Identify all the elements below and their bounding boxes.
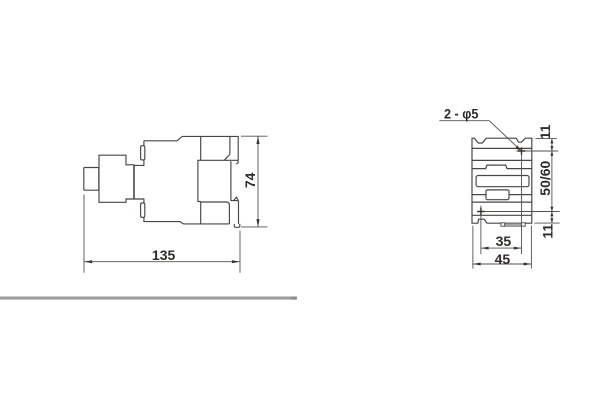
svg-text:45: 45: [495, 251, 511, 267]
svg-text:74: 74: [242, 172, 258, 188]
svg-text:2 - φ5: 2 - φ5: [444, 105, 479, 121]
svg-text:50/60: 50/60: [537, 160, 553, 195]
svg-text:11: 11: [537, 124, 553, 139]
svg-text:35: 35: [496, 233, 512, 249]
svg-text:135: 135: [152, 247, 176, 263]
svg-text:11: 11: [539, 224, 555, 239]
